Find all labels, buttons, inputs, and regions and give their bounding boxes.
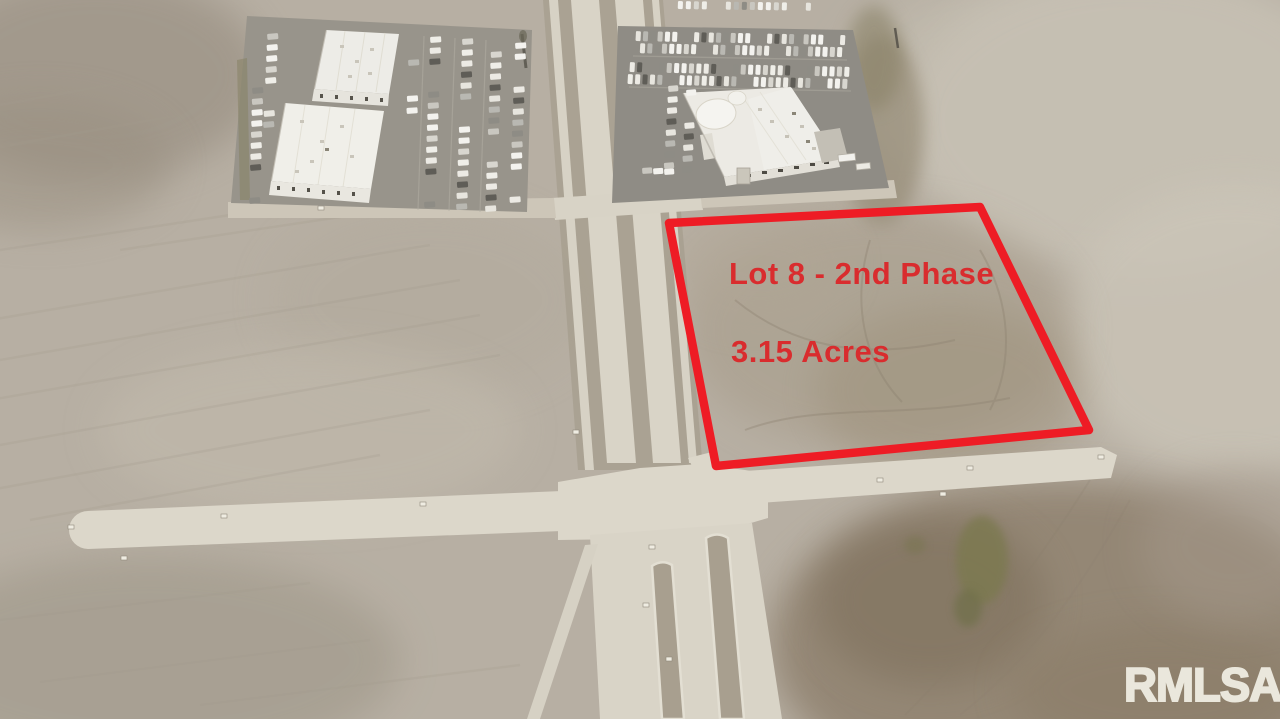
- lot-title-label: Lot 8 - 2nd Phase: [729, 256, 994, 292]
- aerial-photo: Lot 8 - 2nd Phase 3.15 Acres RMLSA: [0, 0, 1280, 719]
- left-complex: [231, 16, 532, 212]
- lot-acreage-label: 3.15 Acres: [731, 334, 890, 370]
- truck-trailer: [856, 163, 871, 170]
- left-building-lower: [269, 103, 384, 203]
- watermark-rmlsa: RMLSA: [1124, 657, 1280, 712]
- truck-trailer: [838, 153, 856, 162]
- left-building-upper: [312, 30, 399, 106]
- aerial-scene: [0, 0, 1280, 719]
- road-south-pavement: [590, 523, 782, 719]
